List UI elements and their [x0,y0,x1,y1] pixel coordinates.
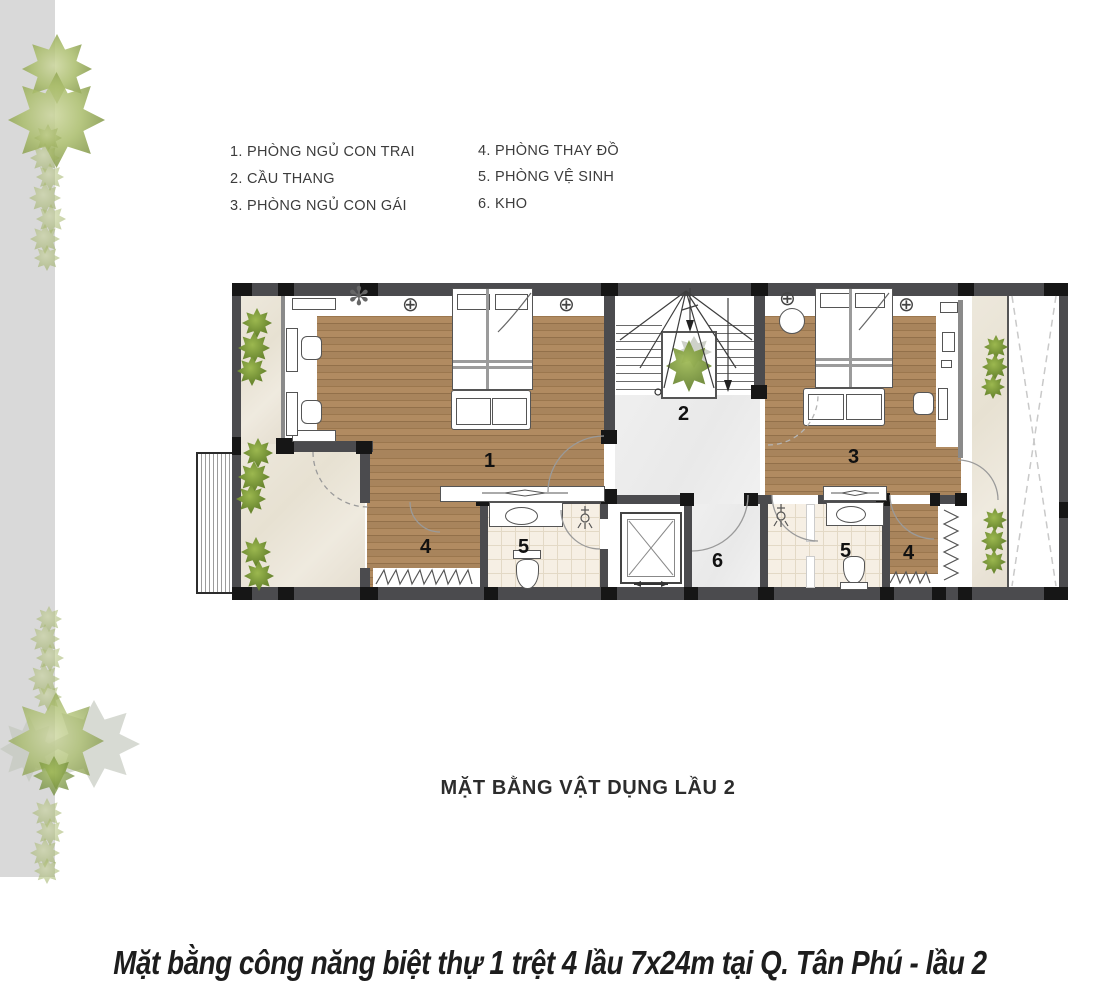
legend-item: 4. PHÒNG THAY ĐỒ [478,143,619,159]
stair-flight-left [616,318,662,395]
room-label-dressing-left: 4 [420,536,431,559]
elevator-cab [627,519,675,577]
bush-icon [36,644,64,672]
ceiling-light-icon: ⊕ [898,294,915,314]
pillow [855,293,885,308]
bush-icon [36,606,62,632]
column [232,587,252,600]
plant-icon [243,438,273,468]
plant-icon [242,308,272,338]
sink-basin [836,506,866,523]
desk [286,328,298,372]
sofa-cushion [846,394,882,420]
window-wall [281,296,285,442]
desk [286,392,298,436]
bed-runner [486,289,489,389]
plant-icon [236,484,266,514]
column [751,283,768,296]
void-divider [1007,292,1009,588]
legend-item: 1. PHÒNG NGỦ CON TRAI [230,144,415,160]
hanger-strip [888,574,938,587]
column [356,441,372,454]
shelf [940,302,958,313]
column [1044,587,1068,600]
legend-item: 3. PHÒNG NGỦ CON GÁI [230,198,407,214]
bush-icon [29,182,61,214]
ceiling-light-icon: ⊕ [558,294,575,314]
room-label-bath-left: 5 [518,536,529,559]
column [958,587,972,600]
hanger-strip [938,504,964,587]
sofa-cushion [456,398,491,425]
dresser-counter [823,486,887,501]
bush-icon [34,858,60,884]
plant-icon [982,354,1008,380]
bush-icon [34,124,62,152]
dresser-counter [440,486,605,502]
plant-icon [982,550,1006,574]
chair [913,392,934,415]
shelf [292,430,336,442]
bush-icon [36,204,66,234]
column [955,493,967,506]
pillow [820,293,850,308]
tree-icon [8,72,105,168]
room-label-bedroom3: 3 [848,446,859,469]
column [1059,502,1068,518]
column [601,283,618,296]
dressing-left-floor [367,452,485,587]
chair [301,336,322,360]
shelf [292,298,336,310]
sink-basin [505,507,538,525]
legend-item: 5. PHÒNG VỆ SINH [478,169,614,185]
column [278,283,294,296]
shower-partition [806,556,815,588]
room-label-bath-right: 5 [840,540,851,563]
desk [938,388,948,420]
column [932,587,946,600]
sofa-cushion [492,398,527,425]
chair [301,400,322,424]
plant-icon [238,332,270,364]
bush-icon [30,143,60,173]
bush-icon [34,245,60,271]
plant-icon [244,561,274,591]
bed-runner [816,364,892,367]
room-label-stairs: 2 [678,403,689,426]
legend-item: 2. CẦU THANG [230,171,335,187]
column [232,283,252,296]
column [484,587,498,600]
bed-runner [453,360,532,363]
wall [684,504,692,587]
column [880,587,894,600]
plant-icon [984,335,1008,359]
bed-runner [849,289,852,387]
floor-plan-page: 1. PHÒNG NGỦ CON TRAI 2. CẦU THANG 3. PH… [0,0,1100,1000]
plant-icon [237,356,267,386]
toilet-tank [840,582,868,590]
ceiling-light-icon: ⊕ [402,294,419,314]
bush-icon [36,818,64,846]
column [601,587,617,600]
column [601,430,617,444]
column [758,587,774,600]
bed-runner [816,358,892,361]
plant-icon [666,340,712,392]
stool [779,308,805,334]
hanger-strip [373,568,480,587]
room-label-bedroom1: 1 [484,450,495,473]
plant-icon [981,375,1005,399]
cabinet [942,332,955,352]
wall [600,549,608,587]
column [744,493,758,506]
column [684,587,698,600]
storage-floor [692,504,760,587]
wall [1059,283,1068,600]
page-caption: Mặt bằng công năng biệt thự 1 trệt 4 lầu… [88,944,1012,982]
ceiling-fan-icon: ✻ [348,284,370,310]
wall [360,452,370,503]
column [930,493,940,506]
shower-partition [806,504,815,542]
plant-icon [983,508,1007,532]
cabinet [941,360,952,368]
column [958,283,974,296]
wall [604,296,615,436]
wall [760,504,768,587]
plant-icon [238,461,270,493]
bush-icon [36,163,64,191]
sofa-cushion [808,394,844,420]
column [278,587,294,600]
column [751,385,767,399]
window-wall [958,300,963,458]
ceiling-light-icon: ⊕ [779,288,796,308]
pillow [495,294,528,310]
wall [754,296,765,395]
room-label-dressing-right: 4 [903,542,914,565]
column [360,587,378,600]
wall [480,504,488,587]
void-floor [1009,292,1059,588]
bush-icon [33,756,75,796]
wall [600,504,608,519]
legend-item: 6. KHO [478,196,527,212]
bush-icon [30,624,60,654]
column [1044,283,1068,296]
plant-icon [241,537,271,567]
room-label-storage: 6 [712,550,723,573]
column [232,437,241,455]
column [680,493,694,506]
plan-title: MẶT BẰNG VẬT DỤNG LẦU 2 [441,777,736,800]
bed-runner [453,366,532,369]
